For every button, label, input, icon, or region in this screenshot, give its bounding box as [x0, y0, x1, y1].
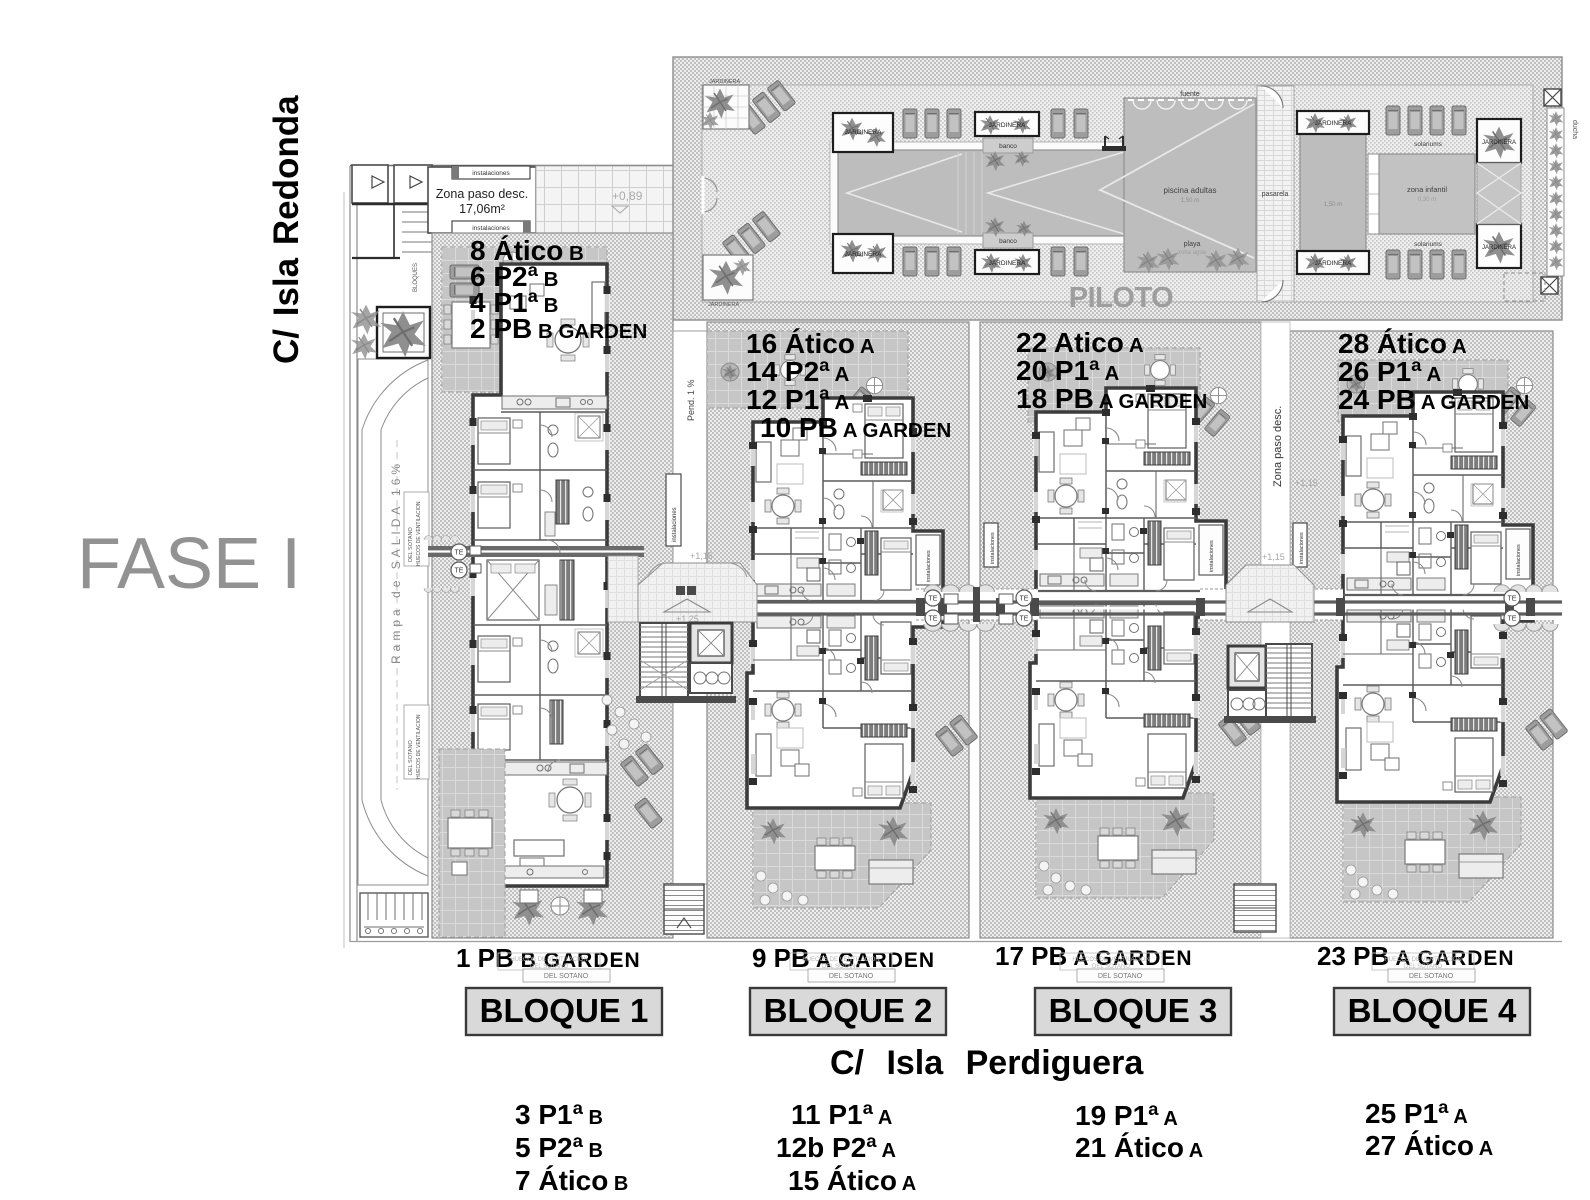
- svg-text:DEL SOTANO: DEL SOTANO: [1098, 973, 1143, 980]
- svg-text:BLOQUE 3: BLOQUE 3: [1049, 992, 1218, 1029]
- svg-text:playa: playa: [1184, 241, 1201, 248]
- svg-text:JARDINERA: JARDINERA: [709, 79, 741, 85]
- svg-text:piscina adultas: piscina adultas: [1164, 186, 1217, 195]
- svg-text:HUECOS DE VENTILACION: HUECOS DE VENTILACION: [416, 501, 422, 566]
- svg-text:+1,15: +1,15: [1262, 552, 1285, 562]
- svg-text:12b P2ª A: 12b P2ª A: [776, 1132, 896, 1163]
- svg-text:instalaciones: instalaciones: [1299, 532, 1305, 564]
- svg-text:JARDINERA: JARDINERA: [708, 302, 740, 308]
- svg-text:zona agua: zona agua: [1178, 250, 1207, 256]
- svg-text:ducha: ducha: [1571, 120, 1578, 139]
- svg-text:0,30 m: 0,30 m: [1418, 197, 1436, 203]
- svg-text:3 P1ª B: 3 P1ª B: [515, 1099, 603, 1130]
- svg-text:7 Ático B: 7 Ático B: [515, 1165, 628, 1196]
- svg-text:HUECOS DE VENTILACION: HUECOS DE VENTILACION: [1072, 957, 1149, 963]
- svg-text:HUECOS DE VENTILACION: HUECOS DE VENTILACION: [416, 714, 422, 779]
- svg-text:+1,15: +1,15: [690, 551, 713, 561]
- svg-text:21 Ático A: 21 Ático A: [1075, 1132, 1203, 1163]
- svg-text:DEL SOTANO: DEL SOTANO: [544, 973, 589, 980]
- svg-text:DEL SOTANO: DEL SOTANO: [1409, 973, 1454, 980]
- svg-text:zona infantil: zona infantil: [1407, 185, 1447, 194]
- svg-text:Zona paso desc.: Zona paso desc.: [1272, 406, 1284, 487]
- svg-text:5 P2ª B: 5 P2ª B: [515, 1132, 603, 1163]
- svg-text:fuente: fuente: [1180, 91, 1200, 98]
- svg-text:JARDINERA: JARDINERA: [1315, 120, 1353, 127]
- svg-text:JARDINERA: JARDINERA: [989, 122, 1027, 129]
- svg-text:HUECOS DE VENTILACION: HUECOS DE VENTILACION: [1384, 957, 1461, 963]
- svg-text:solariums: solariums: [1414, 141, 1443, 148]
- svg-text:instalaciones: instalaciones: [990, 532, 996, 564]
- svg-text:1,50 m: 1,50 m: [1181, 198, 1199, 204]
- svg-text:15 Ático A: 15 Ático A: [788, 1165, 916, 1196]
- svg-text:DEL SOTANO: DEL SOTANO: [408, 739, 414, 775]
- svg-text:C/ Isla Redonda: C/ Isla Redonda: [267, 95, 306, 364]
- svg-text:DEL SOTANO: DEL SOTANO: [829, 973, 874, 980]
- svg-text:+1,15: +1,15: [1295, 478, 1318, 488]
- svg-text:JARDINERA: JARDINERA: [989, 260, 1027, 267]
- svg-text:pasarela: pasarela: [1262, 191, 1289, 198]
- svg-text:17,06m²: 17,06m²: [459, 202, 505, 216]
- svg-text:JARDINERA: JARDINERA: [845, 129, 883, 136]
- svg-text:Rampa de SALIDA 16%: Rampa de SALIDA 16%: [389, 460, 403, 664]
- svg-text:JARDINERA: JARDINERA: [1482, 245, 1516, 251]
- svg-text:C/ Isla Perdiguera: C/ Isla Perdiguera: [830, 1044, 1144, 1082]
- svg-text:Pend. 1 %: Pend. 1 %: [686, 379, 696, 421]
- svg-text:JARDINERA: JARDINERA: [845, 251, 883, 258]
- svg-text:instalaciones: instalaciones: [472, 170, 510, 177]
- svg-text:11 P1ª A: 11 P1ª A: [791, 1099, 892, 1130]
- svg-text:banco: banco: [999, 143, 1017, 150]
- svg-text:BLOQUE 1: BLOQUE 1: [480, 992, 649, 1029]
- svg-text:HUECOS DE VENTILACION: HUECOS DE VENTILACION: [802, 957, 879, 963]
- svg-text:19 P1ª A: 19 P1ª A: [1075, 1100, 1178, 1131]
- svg-text:solariums: solariums: [1414, 241, 1443, 248]
- svg-text:HUECOS DE VENTILACION: HUECOS DE VENTILACION: [510, 957, 587, 963]
- svg-text:JARDINERA: JARDINERA: [1482, 140, 1516, 146]
- svg-text:instalaciones: instalaciones: [472, 225, 510, 232]
- svg-text:instalaciones: instalaciones: [672, 507, 678, 542]
- svg-text:DEL SOTANO: DEL SOTANO: [408, 526, 414, 562]
- svg-text:PILOTO: PILOTO: [1069, 282, 1173, 314]
- svg-text:+0,89: +0,89: [612, 189, 643, 203]
- svg-text:BLOQUES: BLOQUES: [413, 263, 419, 292]
- svg-text:BLOQUE 4: BLOQUE 4: [1348, 992, 1517, 1029]
- svg-text:BLOQUE 2: BLOQUE 2: [764, 992, 933, 1029]
- svg-text:Zona paso desc.: Zona paso desc.: [436, 187, 528, 201]
- svg-text:25 P1ª A: 25 P1ª A: [1365, 1098, 1468, 1129]
- svg-text:JARDINERA: JARDINERA: [1315, 260, 1353, 267]
- svg-text:1,50 m: 1,50 m: [1324, 202, 1342, 208]
- svg-text:27 Ático A: 27 Ático A: [1365, 1130, 1493, 1161]
- svg-text:FASE I: FASE I: [77, 524, 301, 604]
- svg-text:banco: banco: [999, 238, 1017, 245]
